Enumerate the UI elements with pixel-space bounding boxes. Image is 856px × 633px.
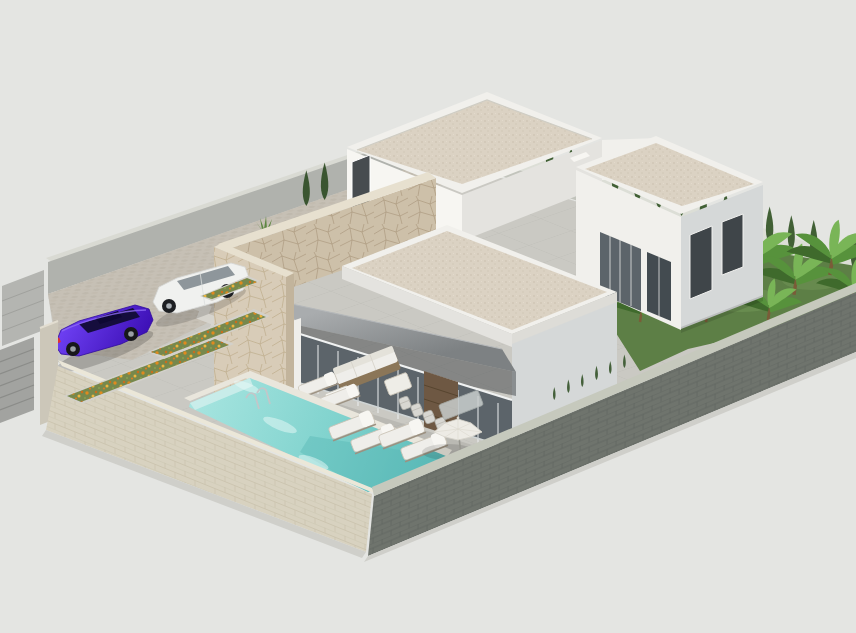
- render-canvas: [0, 0, 856, 633]
- window-rear-right-1: [690, 226, 712, 299]
- window-rear-right-2: [722, 214, 743, 275]
- villa-render: [0, 0, 856, 633]
